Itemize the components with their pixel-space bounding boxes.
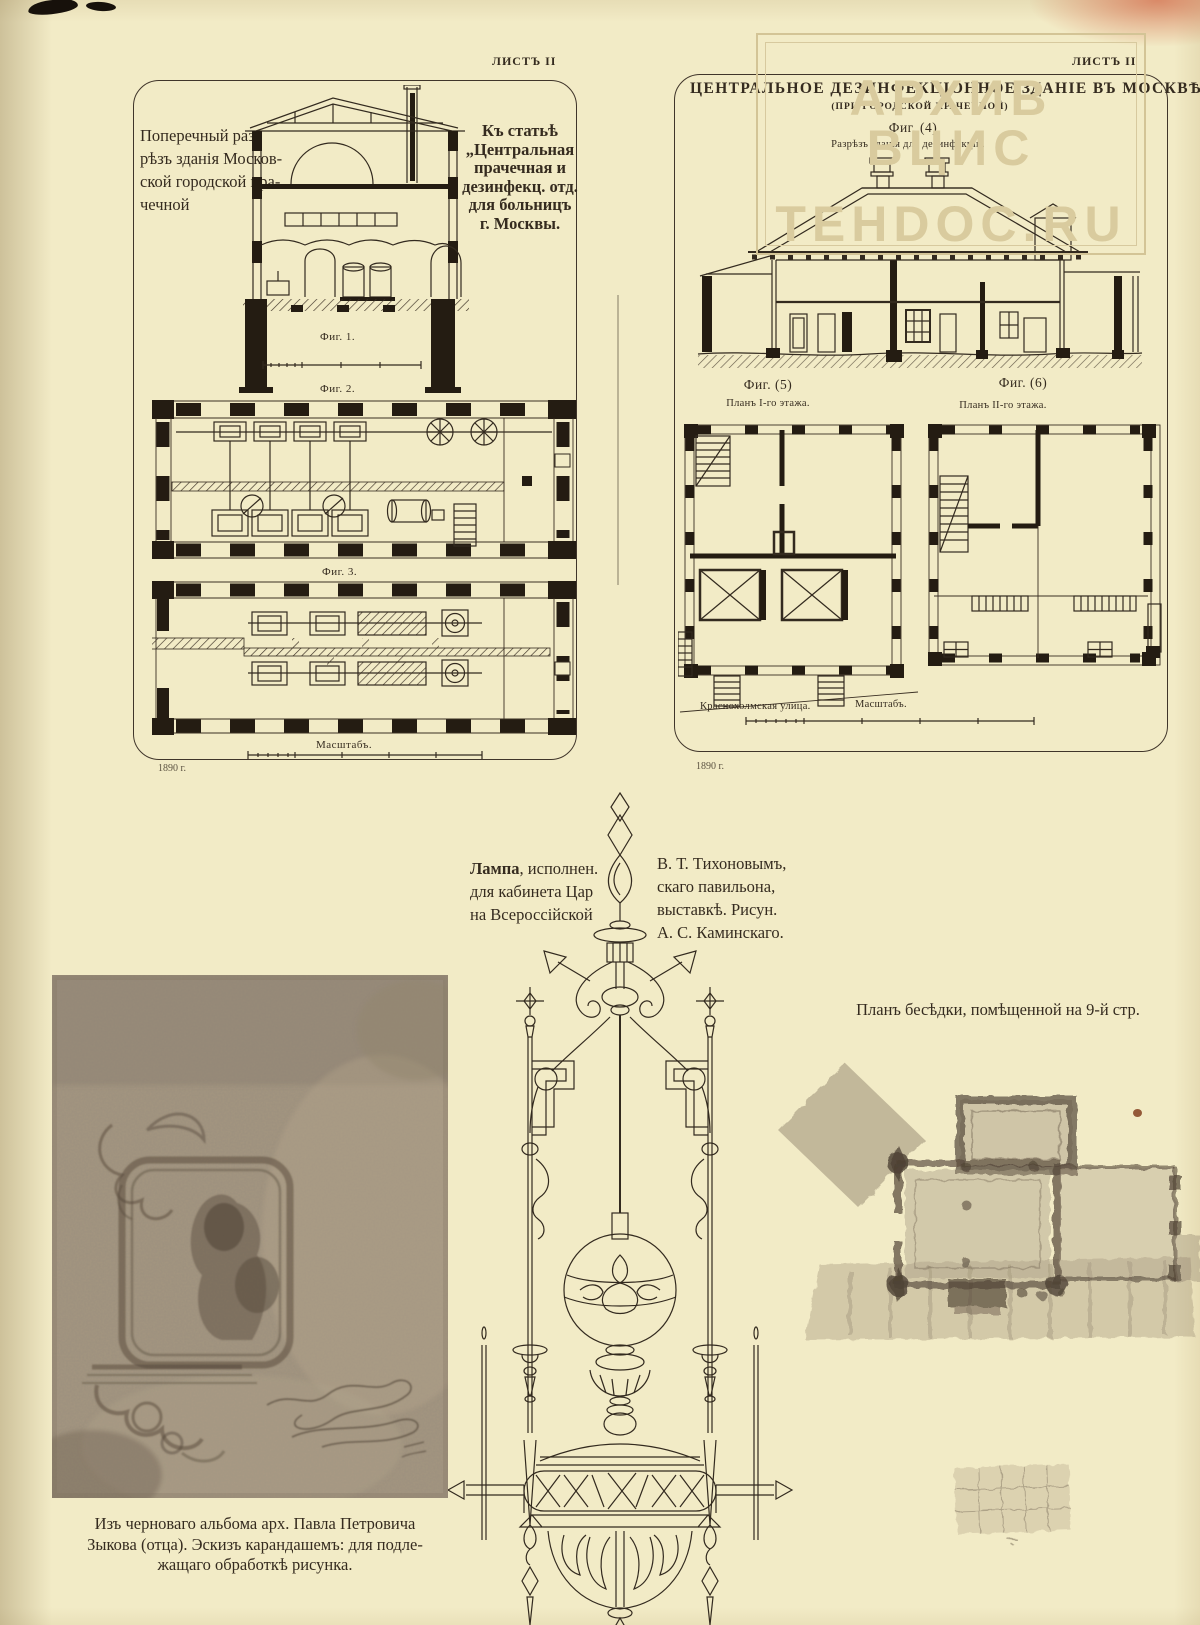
fig1-label: Фиг. 1. <box>320 331 380 343</box>
sheet-number-left: ЛИСТЪ II <box>492 54 556 69</box>
laundry-mangle-hall-plan-figure <box>152 576 578 736</box>
crossbar <box>448 1481 792 1513</box>
year-label-left: 1890 г. <box>158 763 186 774</box>
disinfection-floor-plans-figure <box>678 418 1162 718</box>
second-floor-plan <box>928 424 1161 666</box>
page-crease <box>617 295 619 585</box>
gazebo-plan-drawing <box>750 1035 1200 1345</box>
watermark-line: TEHDOC.RU <box>758 199 1144 249</box>
year-label-right: 1890 г. <box>696 761 724 772</box>
laundry-cross-section-figure <box>225 85 475 393</box>
scanned-journal-page: ЛИСТЪ II ЛИСТЪ II Поперечный раз- рѣзъ з… <box>0 0 1200 1625</box>
braided-band <box>524 1471 716 1511</box>
watermark-line: АРХИВ ВЦИС <box>758 73 1144 173</box>
fig5-label: Фиг. (5) <box>728 377 808 393</box>
first-floor-plan <box>678 424 918 712</box>
gazebo-caption: Планъ бесѣдки, помѣщенной на 9-й стр. <box>848 998 1148 1021</box>
scan-ink-blot <box>86 1 117 12</box>
barrel-and-stairs <box>388 500 477 546</box>
archive-watermark: АРХИВ ВЦИС TEHDOC.RU <box>756 33 1146 255</box>
laundry-washing-hall-plan-figure <box>152 392 578 564</box>
lamp-drawing <box>440 785 800 1625</box>
right-post <box>666 987 727 1625</box>
fig5-caption: Планъ I-го этажа. <box>713 398 823 409</box>
pencil-sketch-photo <box>52 975 448 1498</box>
fig6-caption: Планъ II-го этажа. <box>943 400 1063 411</box>
sketch-caption: Изъ черноваго альбома арх. Павла Петрови… <box>60 1514 450 1576</box>
scale-bar-right <box>740 712 1040 728</box>
faint-grid-sketch <box>950 1460 1085 1550</box>
caption-line: Зыкова (отца). Эскизъ карандашемъ: для п… <box>60 1535 450 1556</box>
street-label: Краснохолмская улица. <box>700 701 830 712</box>
floor-drains <box>241 495 345 517</box>
interior-wall <box>172 482 504 491</box>
scale-bar-left <box>240 748 490 760</box>
caption-line: Изъ черноваго альбома арх. Павла Петрови… <box>60 1514 450 1535</box>
scan-ink-blot <box>27 0 78 17</box>
fig6-label: Фиг. (6) <box>983 375 1063 391</box>
side-room <box>1060 1167 1200 1281</box>
drive-shaft-and-machines <box>176 422 552 536</box>
lamp-globe <box>564 1234 676 1346</box>
caption-line: жащаго обработкѣ рисунка. <box>60 1555 450 1576</box>
openwork-basket <box>548 1531 692 1609</box>
left-post <box>513 987 574 1625</box>
scale-label-right: Масштабъ. <box>855 699 925 710</box>
corridor <box>152 638 244 649</box>
